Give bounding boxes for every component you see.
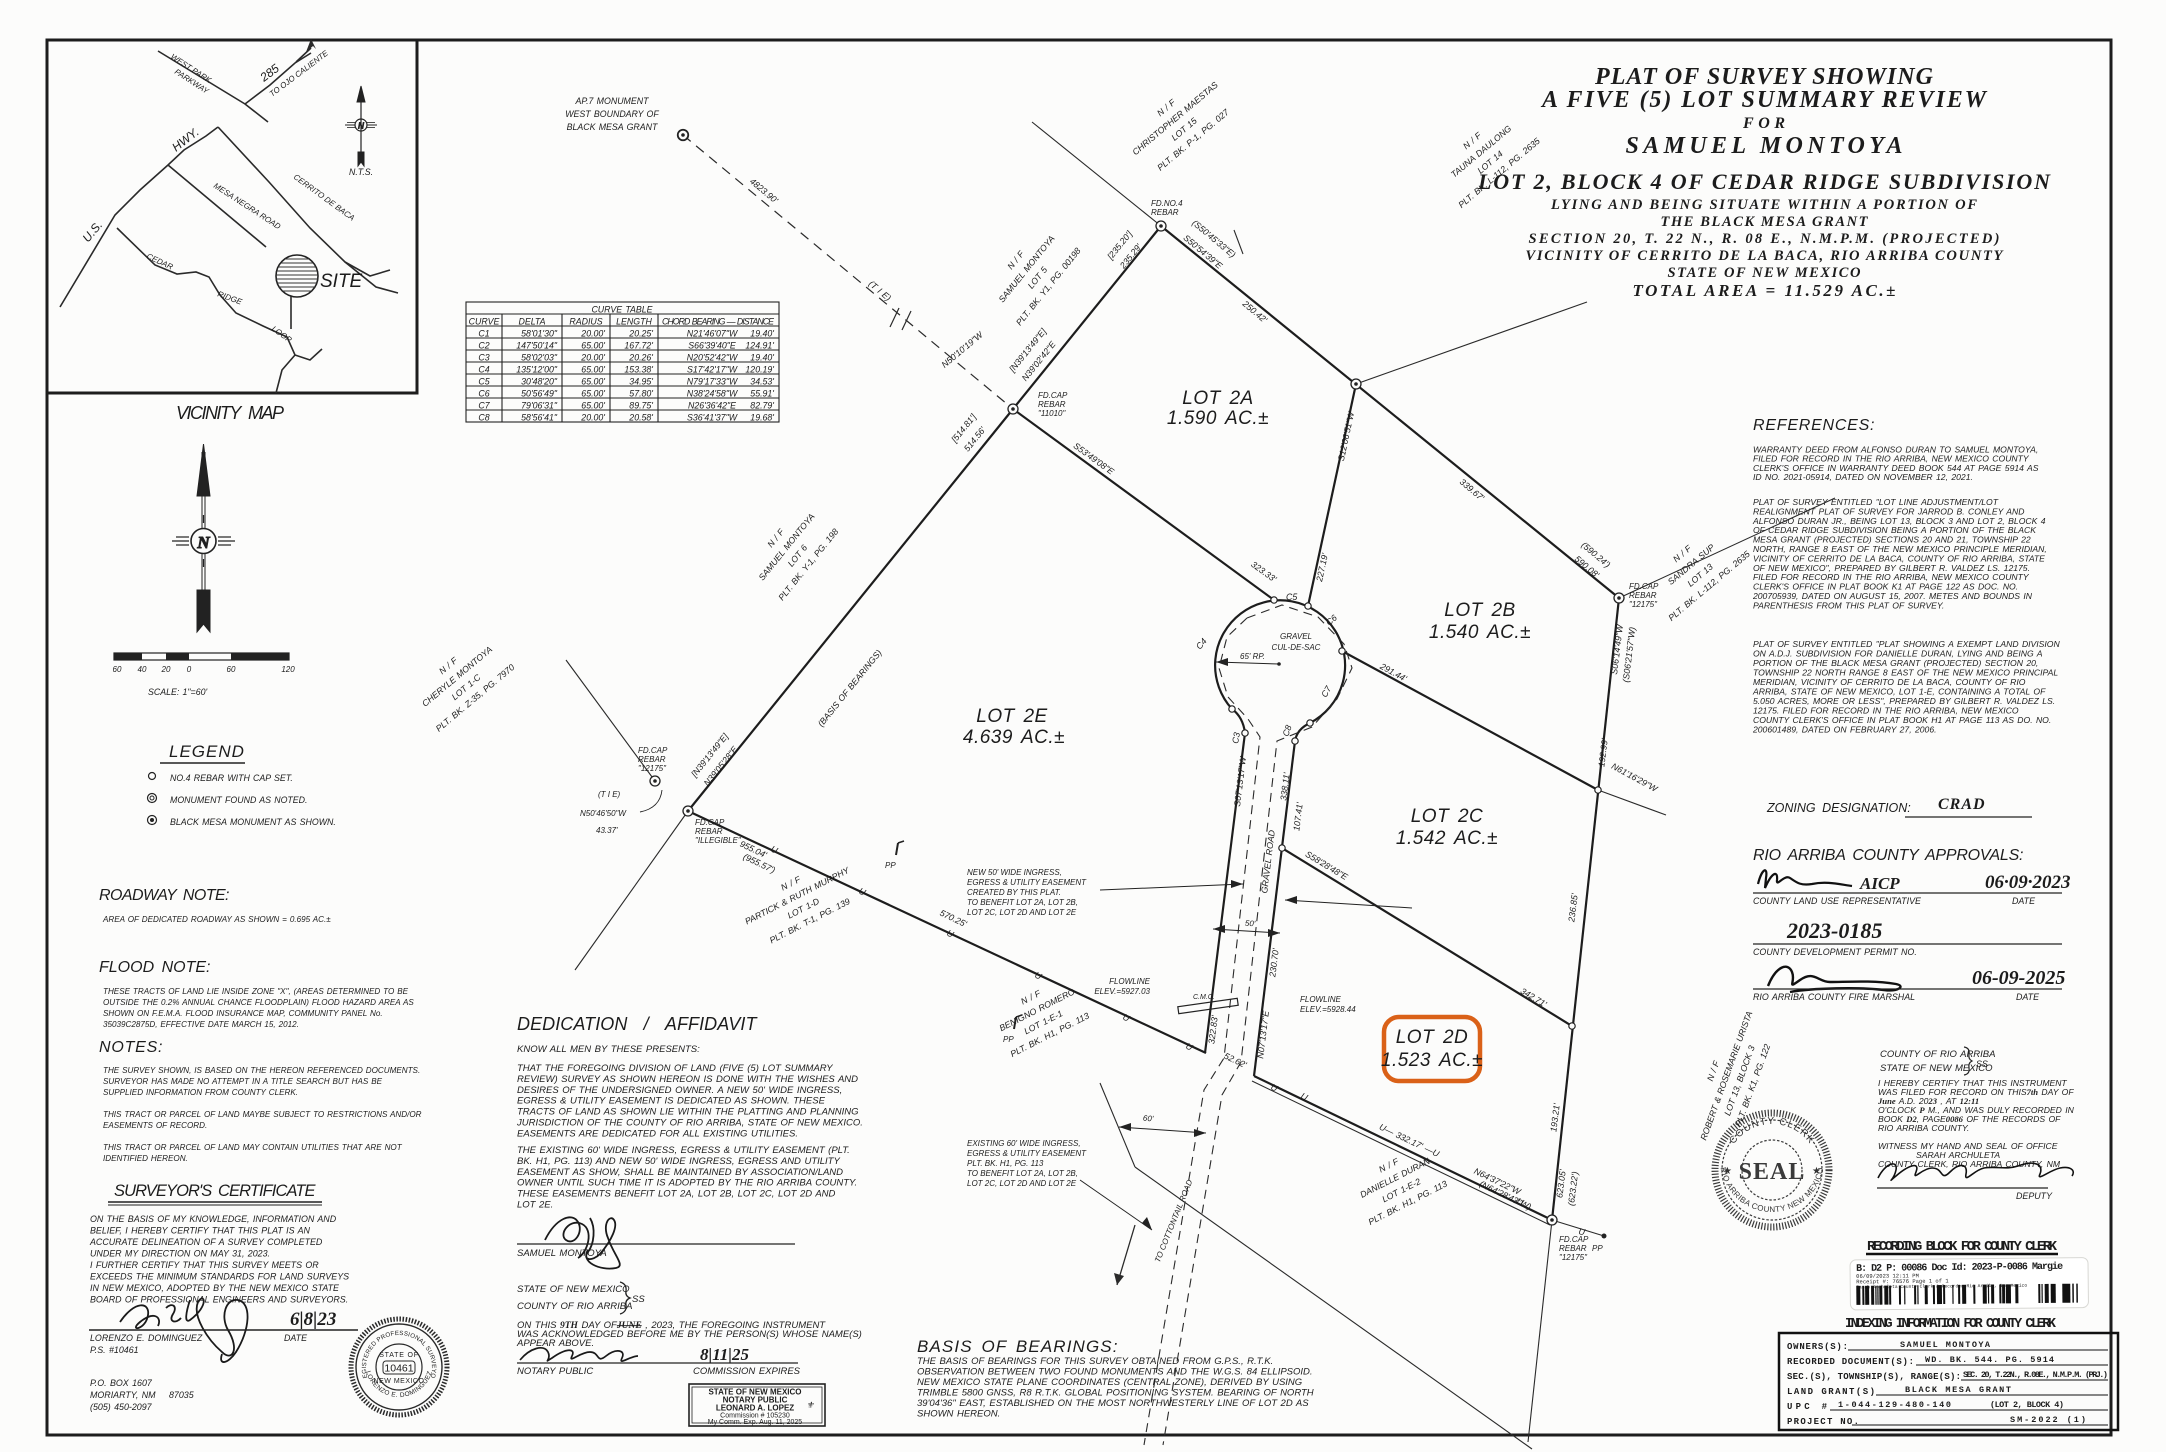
svg-text:FLOWLINE: FLOWLINE [1109,977,1151,986]
svg-text:30'48'20": 30'48'20" [521,377,558,387]
svg-text:58'56'41": 58'56'41" [521,413,558,423]
svg-text:236.85': 236.85' [1566,893,1580,924]
svg-text:N50'46'50"W: N50'46'50"W [580,809,627,818]
svg-text:0: 0 [187,665,192,674]
svg-text:REVIEW) SURVEY AS SHOWN HEREON: REVIEW) SURVEY AS SHOWN HEREON IS DONE W… [517,1074,858,1085]
svg-text:C3: C3 [1230,731,1242,744]
svg-text:SAMUEL MONTOYA: SAMUEL MONTOYA [517,1248,607,1259]
svg-text:N50'10'19"W: N50'10'19"W [940,329,986,370]
svg-text:ON A.D.J. SUBDIVISION FOR DANI: ON A.D.J. SUBDIVISION FOR DANIELLE DURAN… [1753,649,2043,659]
svg-text:20.26': 20.26' [628,353,653,363]
svg-text:153.38': 153.38' [624,365,653,375]
svg-text:20: 20 [161,665,171,674]
svg-text:PLT. BK. P-1, PG. 027: PLT. BK. P-1, PG. 027 [1155,106,1231,172]
svg-text:N21'46'07"W: N21'46'07"W [687,329,738,339]
svg-text:RIO ARRIBA COUNTY APPROVALS:: RIO ARRIBA COUNTY APPROVALS: [1753,847,2024,864]
svg-text:U.S.: U.S. [80,218,106,245]
svg-text:S36'41'37"W: S36'41'37"W [687,413,738,423]
svg-text:C3: C3 [478,353,489,363]
svg-text:338.11': 338.11' [1278,772,1291,801]
svg-text:STATE OF: STATE OF [379,1352,419,1359]
svg-text:THIS TRACT OR PARCEL OF LAND M: THIS TRACT OR PARCEL OF LAND MAYBE SUBJE… [103,1110,422,1119]
svg-text:THE BASIS OF BEARINGS FOR THIS: THE BASIS OF BEARINGS FOR THIS SURVEY OB… [917,1356,1273,1367]
svg-text:ROADWAY NOTE:: ROADWAY NOTE: [99,887,230,904]
svg-text:INDEXING INFORMATION FOR COUNT: INDEXING INFORMATION FOR COUNTY CLERK [1845,1317,2057,1332]
svg-text:C4: C4 [1194,636,1209,651]
svg-text:227.19': 227.19' [1314,552,1330,583]
svg-text:LOT 2C, LOT 2D AND LOT 2E: LOT 2C, LOT 2D AND LOT 2E [967,1179,1077,1188]
svg-text:120.19': 120.19' [745,365,774,375]
svg-text:5.050 ACRES, MORE OR LESS", PR: 5.050 ACRES, MORE OR LESS", PREPARED BY … [1753,696,2055,706]
svg-text:A FIVE (5) LOT SUMMARY REVIEW: A FIVE (5) LOT SUMMARY REVIEW [1540,87,1988,113]
svg-text:EASEMENTS ARE DEDICATED FOR AL: EASEMENTS ARE DEDICATED FOR ALL EXISTING… [517,1128,798,1139]
svg-text:PARTICK & RUTH MURPHY: PARTICK & RUTH MURPHY [743,865,851,927]
svg-text:FLOWLINE: FLOWLINE [1300,995,1342,1004]
svg-text:65' RP.: 65' RP. [1240,652,1265,661]
svg-text:285: 285 [257,61,282,85]
svg-text:COMMISSION EXPIRES: COMMISSION EXPIRES [693,1366,801,1377]
svg-text:N: N [358,122,364,131]
svg-text:SHOWN HEREON.: SHOWN HEREON. [917,1409,1000,1420]
svg-text:1.523 AC.±: 1.523 AC.± [1381,1050,1483,1071]
svg-text:C1: C1 [478,329,489,339]
svg-text:N38'24'58"W: N38'24'58"W [687,389,738,399]
svg-text:65.00': 65.00' [581,401,605,411]
svg-text:ON THE BASIS OF MY KNOWLEDGE,: ON THE BASIS OF MY KNOWLEDGE, INFORMATIO… [90,1214,337,1224]
svg-text:FLOOD NOTE:: FLOOD NOTE: [99,959,211,976]
svg-text:PP: PP [1003,1035,1014,1044]
svg-text:89.75': 89.75' [629,401,653,411]
svg-text:322.83': 322.83' [1206,1015,1219,1045]
svg-text:S07'13'17"W: S07'13'17"W [1232,756,1248,808]
svg-text:570.25': 570.25' [938,908,968,929]
svg-text:79'06'31": 79'06'31" [521,401,558,411]
svg-text:REBAR: REBAR [1151,208,1179,217]
svg-text:TOTAL AREA = 11.529 AC.±: TOTAL AREA = 11.529 AC.± [1633,281,1896,300]
svg-text:N.T.S.: N.T.S. [349,167,373,177]
svg-text:OBSERVATION BETWEEN TWO FOUND: OBSERVATION BETWEEN TWO FOUND MONUMENTS … [917,1367,1313,1378]
svg-text:LEGEND: LEGEND [169,742,245,761]
svg-text:WD. BK. 544. PG. 5914: WD. BK. 544. PG. 5914 [1925,1355,2054,1365]
svg-text:623.05': 623.05' [1554,1169,1567,1199]
svg-text:N20'52'42"W: N20'52'42"W [687,353,738,363]
svg-text:OUTSIDE THE 0.2% ANNUAL CHANCE: OUTSIDE THE 0.2% ANNUAL CHANCE FLOODPLAI… [103,998,414,1007]
svg-text:20.25': 20.25' [628,329,653,339]
svg-text:LORENZO E. DOMINGUEZ: LORENZO E. DOMINGUEZ [90,1333,203,1343]
svg-text:BLACK MESA GRANT: BLACK MESA GRANT [567,122,658,132]
svg-text:BOARD OF PROFESSIONAL ENGINEER: BOARD OF PROFESSIONAL ENGINEERS AND SURV… [90,1295,348,1305]
svg-text:C5: C5 [1286,592,1297,602]
svg-text:BASIS OF BEARINGS:: BASIS OF BEARINGS: [917,1337,1118,1356]
svg-text:COUNTY DEVELOPMENT PERMIT NO.: COUNTY DEVELOPMENT PERMIT NO. [1753,947,1917,957]
svg-text:RECORDING BLOCK FOR COUNTY CLE: RECORDING BLOCK FOR COUNTY CLERK [1867,1239,2058,1255]
svg-text:SURVEYOR'S CERTIFICATE: SURVEYOR'S CERTIFICATE [114,1182,316,1200]
svg-text:135'12'00": 135'12'00" [516,365,558,375]
svg-text:107.41': 107.41' [1291,802,1304,832]
svg-text:BELIEF, I HEREBY CERTIFY THAT: BELIEF, I HEREBY CERTIFY THAT THIS PLAT … [90,1226,311,1236]
svg-text:NOTARY PUBLIC: NOTARY PUBLIC [517,1366,593,1377]
svg-text:4.639 AC.±: 4.639 AC.± [963,727,1065,748]
svg-text:12175. FILED FOR RECORD IN TH: 12175. FILED FOR RECORD IN THE RIO ARRIB… [1753,706,2019,716]
svg-text:N26'36'42"E: N26'36'42"E [688,401,736,411]
svg-text:GRAVEL: GRAVEL [1280,632,1312,641]
svg-text:REBAR: REBAR [1629,591,1657,600]
svg-text:PORTION OF THE BLACK MESA GRAN: PORTION OF THE BLACK MESA GRANT (PROJECT… [1753,658,2038,668]
svg-text:MESA NEGRA ROAD: MESA NEGRA ROAD [212,181,283,231]
svg-text:BLACK MESA GRANT: BLACK MESA GRANT [1905,1385,2011,1395]
svg-text:TO BENEFIT LOT 2A, LOT 2B,: TO BENEFIT LOT 2A, LOT 2B, [967,1169,1078,1178]
svg-text:60: 60 [227,665,236,674]
svg-text:NO.4 REBAR WITH CAP SET.: NO.4 REBAR WITH CAP SET. [170,773,293,783]
svg-text:BK. H1, PG. 113) AND NEW 50' W: BK. H1, PG. 113) AND NEW 50' WIDE INGRES… [517,1156,840,1167]
svg-text:SURVEYOR HAS MADE NO ATTEMPT I: SURVEYOR HAS MADE NO ATTEMPT IN A TITLE … [103,1077,383,1086]
svg-text:65.00': 65.00' [581,365,605,375]
svg-text:CEDAR: CEDAR [145,252,174,272]
svg-text:BLACK MESA MONUMENT AS SHOWN.: BLACK MESA MONUMENT AS SHOWN. [170,817,336,827]
svg-text:My Comm. Exp. Aug. 11, 2025: My Comm. Exp. Aug. 11, 2025 [708,1419,803,1426]
svg-text:CERRITO DE BACA: CERRITO DE BACA [292,172,357,222]
svg-text:REBAR: REBAR [638,755,666,764]
svg-text:C6: C6 [1324,613,1339,628]
svg-text:65.00': 65.00' [581,341,605,351]
svg-text:SECTION 20, T. 22 N., R. 08 E.: SECTION 20, T. 22 N., R. 08 E., N.M.P.M.… [1529,231,2000,247]
svg-text:OWNER UNTIL SUCH TIME IT IS AD: OWNER UNTIL SUCH TIME IT IS ADOPTED BY T… [517,1178,857,1189]
svg-text:SS: SS [632,1294,645,1305]
svg-text:ARRIBA, STATE OF NEW MEXICO, L: ARRIBA, STATE OF NEW MEXICO, LOT 1-E, CO… [1752,687,2046,697]
svg-text:AREA OF DEDICATED ROADWAY AS S: AREA OF DEDICATED ROADWAY AS SHOWN = 0.6… [102,915,331,924]
svg-text:FD.CAP: FD.CAP [1559,1235,1589,1244]
svg-text:P.O. BOX 1607: P.O. BOX 1607 [90,1378,153,1388]
svg-text:339.67': 339.67' [1458,477,1487,503]
svg-text:8|​11|​25: 8|​11|​25 [700,1345,750,1364]
svg-text:LOT 2E.: LOT 2E. [517,1200,553,1211]
svg-text:RIDGE: RIDGE [216,289,244,306]
svg-text:TRACTS OF LAND AS SHOWN LIE WI: TRACTS OF LAND AS SHOWN LIE WITHIN THE P… [517,1107,859,1118]
svg-text:1.542 AC.±: 1.542 AC.± [1396,828,1498,849]
svg-text:55.91': 55.91' [750,389,774,399]
svg-text:65.00': 65.00' [581,377,605,387]
svg-text:DELTA: DELTA [518,317,545,327]
svg-text:LOT 2C: LOT 2C [1411,806,1484,827]
svg-text:193.21': 193.21' [1548,1103,1561,1133]
svg-text:20.00': 20.00' [580,413,605,423]
svg-text:PARENTHESIS FROM THIS PLAT OF: PARENTHESIS FROM THIS PLAT OF SURVEY. [1753,600,1944,610]
svg-text:SEC.(S), TOWNSHIP(S), RANGE(S): SEC.(S), TOWNSHIP(S), RANGE(S): [1787,1372,1961,1382]
svg-text:P.S. #10461: P.S. #10461 [90,1345,139,1355]
svg-text:UNDER MY DIRECTION ON MAY 31,: UNDER MY DIRECTION ON MAY 31, 2023. [90,1249,270,1259]
svg-text:FOR: FOR [1742,115,1785,132]
svg-text:20.58': 20.58' [628,413,653,423]
svg-text:PLAT OF SURVEY ENTITLED "PLAT: PLAT OF SURVEY ENTITLED "PLAT SHOWING A … [1753,639,2060,649]
svg-text:20.00': 20.00' [580,329,605,339]
svg-text:1.540 AC.±: 1.540 AC.± [1429,622,1531,643]
svg-text:EASEMENTS OF RECORD.: EASEMENTS OF RECORD. [103,1121,207,1130]
svg-text:PLT. BK. H1, PG. 113: PLT. BK. H1, PG. 113 [967,1159,1044,1168]
svg-text:RIO ARRIBA COUNTY FIRE MARSHAL: RIO ARRIBA COUNTY FIRE MARSHAL [1753,992,1915,1002]
svg-text:6|8|23: 6|8|23 [290,1309,336,1330]
svg-text:MONUMENT FOUND AS NOTED.: MONUMENT FOUND AS NOTED. [170,795,307,805]
svg-text:STATE OF NEW MEXICO: STATE OF NEW MEXICO [1668,265,1862,281]
svg-text:IDENTIFIED HEREON.: IDENTIFIED HEREON. [103,1154,188,1163]
svg-text:342.71': 342.71' [1519,986,1549,1009]
svg-text:"12175": "12175" [638,764,667,773]
svg-text:THESE EASEMENTS BENEFIT LOT 2A: THESE EASEMENTS BENEFIT LOT 2A, LOT 2B, … [517,1189,836,1200]
svg-text:06·09·2023: 06·09·2023 [1985,872,2071,893]
svg-text:147'50'14": 147'50'14" [516,341,558,351]
svg-text:S66'39'40"E: S66'39'40"E [688,341,736,351]
svg-text:SEC. 20, T.22N., R.08E., N.M.P: SEC. 20, T.22N., R.08E., N.M.P.M. (PRJ.) [1963,1370,2108,1380]
svg-text:SM-2022 (1): SM-2022 (1) [2010,1415,2086,1425]
svg-text:REBAR: REBAR [1559,1244,1587,1253]
svg-text:SAMUEL MONTOYA: SAMUEL MONTOYA [1900,1340,1991,1350]
svg-text:(BASIS OF BEARINGS): (BASIS OF BEARINGS) [816,648,884,729]
svg-text:10461: 10461 [384,1363,413,1375]
svg-text:SAMUEL MONTOYA: SAMUEL MONTOYA [1626,133,1903,159]
svg-text:60: 60 [113,665,122,674]
svg-text:C7: C7 [478,401,490,411]
svg-text:FD.CAP: FD.CAP [1629,582,1659,591]
svg-text:N79'17'33"W: N79'17'33"W [687,377,738,387]
svg-text:EGRESS & UTILITY EASEMENT: EGRESS & UTILITY EASEMENT [967,878,1087,887]
svg-text:NEW MEXICO: NEW MEXICO [374,1378,425,1385]
svg-text:★: ★ [1723,1166,1732,1177]
svg-text:19.40': 19.40' [750,329,774,339]
svg-text:C6: C6 [478,389,489,399]
svg-text:39'04'36" EAST, ESTABLISHED ON: 39'04'36" EAST, ESTABLISHED ON THE MOST … [917,1398,1309,1409]
svg-text:167.72': 167.72' [624,341,653,351]
svg-text:ZONING DESIGNATION:: ZONING DESIGNATION: [1766,801,1911,815]
svg-text:(505) 450-2097: (505) 450-2097 [90,1402,153,1412]
svg-text:2023-0185: 2023-0185 [1786,918,1882,943]
svg-text:ACCURATE DELINEATION OF A SURV: ACCURATE DELINEATION OF A SURVEY COMPLET… [89,1237,323,1247]
svg-text:06-09-2025: 06-09-2025 [1972,967,2065,989]
svg-text:THAT THE FOREGOING DIVISION OF: THAT THE FOREGOING DIVISION OF LAND (FIV… [517,1063,833,1074]
svg-text:IN NEW MEXICO, ADOPTED BY THE: IN NEW MEXICO, ADOPTED BY THE NEW MEXICO… [90,1283,339,1293]
svg-text:THIS TRACT OR PARCEL OF LAND M: THIS TRACT OR PARCEL OF LAND MAY CONTAIN… [103,1143,403,1152]
svg-text:PP: PP [885,861,896,870]
svg-text:LYING AND BEING SITUATE WITHIN: LYING AND BEING SITUATE WITHIN A PORTION… [1550,197,1977,213]
svg-text:DATE: DATE [284,1333,307,1343]
svg-text:MERIDIAN, VICINITY OF CERRITO: MERIDIAN, VICINITY OF CERRITO DE LA BACA… [1753,677,2026,687]
svg-text:S53'49'08"E: S53'49'08"E [1072,441,1116,477]
svg-text:WEST BOUNDARY OF: WEST BOUNDARY OF [565,109,659,119]
svg-text:PLT. BK. Y1, PG. 00198: PLT. BK. Y1, PG. 00198 [1014,246,1083,328]
svg-text:LOT 2D: LOT 2D [1396,1027,1469,1048]
svg-text:82.79': 82.79' [750,401,774,411]
svg-text:NEW MEXICO STATE PLANE COORDIN: NEW MEXICO STATE PLANE COORDINATES (CENT… [917,1377,1302,1388]
svg-text:ELEV.=5928.44: ELEV.=5928.44 [1300,1005,1356,1014]
svg-text:KNOW ALL MEN BY THESE PRESENTS: KNOW ALL MEN BY THESE PRESENTS: [517,1044,700,1055]
svg-text:LOT 2A: LOT 2A [1182,388,1253,409]
svg-text:50'56'49": 50'56'49" [521,389,558,399]
svg-text:U: U [945,928,956,940]
svg-text:SITE: SITE [320,271,363,292]
svg-text:FD.NO.4: FD.NO.4 [1151,199,1183,208]
svg-text:"ILLEGIBLE": "ILLEGIBLE" [695,836,742,845]
svg-text:TOWNSHIP 22 NORTH RANGE 8 EAST: TOWNSHIP 22 NORTH RANGE 8 EAST OF THE NE… [1753,668,2058,678]
svg-text:LOOP: LOOP [270,324,294,345]
svg-text:43.37': 43.37' [596,826,618,835]
svg-text:58'01'30": 58'01'30" [521,329,558,339]
svg-text:THESE TRACTS OF LAND LIE INSID: THESE TRACTS OF LAND LIE INSIDE ZONE "X"… [103,987,409,996]
svg-text:UPC #: UPC # [1787,1402,1828,1412]
svg-text:SS: SS [1976,1059,1988,1069]
svg-text:THE EXISTING 60' WIDE INGRESS,: THE EXISTING 60' WIDE INGRESS, EGRESS & … [517,1145,850,1156]
svg-text:CURVE: CURVE [469,317,500,327]
svg-text:ID NO. 2021-05914, DATED ON NO: ID NO. 2021-05914, DATED ON NOVEMBER 12,… [1753,472,1973,482]
svg-text:DEDICATION / AFFIDAVIT: DEDICATION / AFFIDAVIT [517,1014,759,1034]
svg-text:1.590 AC.±: 1.590 AC.± [1167,408,1269,429]
svg-text:DEPUTY: DEPUTY [2016,1191,2053,1201]
svg-text:N: N [196,533,210,552]
svg-text:LOT 2E: LOT 2E [976,706,1047,727]
svg-text:SCALE: 1"=60': SCALE: 1"=60' [148,687,207,697]
svg-text:COUNTY CLERK'S OFFICE IN PLAT: COUNTY CLERK'S OFFICE IN PLAT BOOK H1 AT… [1753,715,2051,725]
svg-text:RADIUS: RADIUS [569,317,602,327]
svg-text:C8: C8 [478,413,489,423]
svg-text:STATE OF NEW MEXICO: STATE OF NEW MEXICO [517,1284,630,1295]
svg-text:LEONARD A. LOPEZ: LEONARD A. LOPEZ [716,1404,794,1413]
svg-text:LOT 2, BLOCK 4 OF CEDAR RIDGE: LOT 2, BLOCK 4 OF CEDAR RIDGE SUBDIVISIO… [1477,169,2051,194]
svg-text:65.00': 65.00' [581,389,605,399]
svg-text:"12175": "12175" [1629,600,1658,609]
svg-text:57.80': 57.80' [629,389,653,399]
svg-text:40: 40 [138,665,147,674]
svg-text:PLT. BK. Y-1, PG. 198: PLT. BK. Y-1, PG. 198 [776,527,840,603]
svg-text:SHOWN ON F.E.M.A. FLOOD INSURA: SHOWN ON F.E.M.A. FLOOD INSURANCE MAP, C… [103,1009,383,1018]
svg-text:EXCEEDS THE MINIMUM STANDARDS: EXCEEDS THE MINIMUM STANDARDS FOR LAND S… [90,1272,349,1282]
svg-text:VICINITY OF CERRITO DE LA BACA: VICINITY OF CERRITO DE LA BACA, RIO ARRI… [1526,248,2004,264]
svg-text:20.00': 20.00' [580,353,605,363]
svg-text:CHRISTOPHER MAESTAS: CHRISTOPHER MAESTAS [1130,80,1220,157]
svg-text:THE BLACK MESA GRANT: THE BLACK MESA GRANT [1661,214,1869,230]
svg-text:REFERENCES:: REFERENCES: [1753,417,1875,434]
svg-text:34.95': 34.95' [629,377,653,387]
svg-text:RIO ARRIBA COUNTY.: RIO ARRIBA COUNTY. [1878,1123,1969,1133]
svg-text:C7: C7 [1319,683,1334,699]
svg-text:TO COTTONTAIL ROAD: TO COTTONTAIL ROAD [1153,1178,1195,1263]
svg-text:60': 60' [1143,1114,1154,1124]
svg-text:LAND GRANT(S): LAND GRANT(S) [1787,1387,1875,1397]
svg-text:COUNTY OF RIO ARRIBA: COUNTY OF RIO ARRIBA [517,1301,633,1312]
svg-text:JURISDICTION OF THE COUNTY OF: JURISDICTION OF THE COUNTY OF RIO ARRIBA… [516,1118,863,1129]
svg-text:50': 50' [1245,919,1256,929]
svg-text:N61'16'29"W: N61'16'29"W [1610,761,1660,794]
svg-text:FD.CAP: FD.CAP [638,746,668,755]
svg-text:C4: C4 [478,365,489,375]
svg-text:REBAR: REBAR [1038,400,1066,409]
svg-text:CHORD BEARING — DISTANCE: CHORD BEARING — DISTANCE [662,317,774,327]
svg-text:THE SURVEY SHOWN, IS BASED ON: THE SURVEY SHOWN, IS BASED ON THE HEREON… [103,1066,420,1075]
svg-text:52.62': 52.62' [1222,1051,1248,1070]
svg-text:GRAVEL ROAD: GRAVEL ROAD [1259,829,1277,894]
svg-text:EXISTING 60' WIDE INGRESS,: EXISTING 60' WIDE INGRESS, [967,1139,1081,1148]
svg-text:C2: C2 [478,341,489,351]
svg-text:SUPPLIED INFORMATION FROM COUN: SUPPLIED INFORMATION FROM COUNTY CLERK. [103,1088,298,1097]
svg-text:AICP: AICP [1859,874,1900,893]
svg-text:4823.90': 4823.90' [748,176,780,205]
svg-text:EGRESS & UTILITY EASEMENT: EGRESS & UTILITY EASEMENT [967,1149,1087,1158]
svg-text:FD.CAP: FD.CAP [695,818,725,827]
svg-text:OWNERS(S):: OWNERS(S): [1787,1342,1848,1352]
svg-text:RECORDED DOCUMENT(S):: RECORDED DOCUMENT(S): [1787,1357,1914,1367]
svg-text:★: ★ [1812,1166,1821,1177]
svg-text:323.33': 323.33' [1249,559,1278,584]
svg-text:COUNTY LAND USE REPRESENTATIVE: COUNTY LAND USE REPRESENTATIVE [1753,896,1921,906]
svg-text:1-044-129-480-140: 1-044-129-480-140 [1838,1400,1951,1410]
svg-text:58'02'03": 58'02'03" [521,353,558,363]
svg-text:200601489, DATED ON FEBRUARY 2: 200601489, DATED ON FEBRUARY 27, 2006. [1752,725,1937,735]
svg-text:DESIRES OF THE UNDERSIGNED OWN: DESIRES OF THE UNDERSIGNED OWNER. A NEW … [517,1085,842,1096]
svg-text:34.53': 34.53' [750,377,774,387]
svg-text:FD.CAP: FD.CAP [1038,391,1068,400]
svg-text:19.40': 19.40' [750,353,774,363]
svg-text:124.91': 124.91' [745,341,774,351]
svg-text:"12175": "12175" [1559,1253,1588,1262]
svg-text:PP: PP [1592,1244,1603,1253]
svg-text:EASEMENT AS SHOW, SHALL BE MAI: EASEMENT AS SHOW, SHALL BE MAINTAINED BY… [517,1167,843,1178]
svg-text:C.M.C.: C.M.C. [1193,994,1215,1001]
svg-text:C5: C5 [478,377,489,387]
svg-text:CURVE TABLE: CURVE TABLE [591,305,652,315]
svg-text:S12'06'51"W: S12'06'51"W [1336,410,1356,462]
svg-text:N07'13'17"E: N07'13'17"E [1255,1010,1271,1059]
svg-text:35039C2875D, EFFECTIVE DATE MA: 35039C2875D, EFFECTIVE DATE MARCH 15, 20… [103,1020,299,1029]
svg-text:DATE: DATE [2016,992,2039,1002]
svg-text:"11010": "11010" [1038,409,1066,418]
svg-text:(T I E): (T I E) [598,790,621,799]
svg-text:(LOT 2, BLOCK 4): (LOT 2, BLOCK 4) [1990,1400,2064,1410]
svg-text:120: 120 [281,665,295,674]
svg-text:PROJECT NO.: PROJECT NO. [1787,1417,1859,1427]
svg-text:APPEAR ABOVE.: APPEAR ABOVE. [516,1338,594,1349]
svg-text:⚜: ⚜ [806,1400,815,1410]
svg-text:SEAL: SEAL [1739,1159,1806,1185]
svg-text:LOT 2C, LOT 2D AND LOT 2E: LOT 2C, LOT 2D AND LOT 2E [967,908,1077,917]
svg-text:DATE: DATE [2012,896,2035,906]
svg-text:AP.7 MONUMENT: AP.7 MONUMENT [575,96,650,106]
svg-text:NEW 50' WIDE INGRESS,: NEW 50' WIDE INGRESS, [967,868,1062,877]
svg-text:192.99': 192.99' [1596,738,1609,768]
svg-text:I FURTHER CERTIFY THAT THIS SU: I FURTHER CERTIFY THAT THIS SURVEY MEETS… [90,1260,319,1270]
svg-text:NOTES:: NOTES: [99,1039,163,1056]
svg-text:LOT 2B: LOT 2B [1444,600,1515,621]
svg-text:CREATED BY THIS PLAT.: CREATED BY THIS PLAT. [967,888,1061,897]
svg-text:VICINITY MAP: VICINITY MAP [176,403,284,423]
svg-text:CRAD: CRAD [1938,796,1986,813]
svg-text:CUL-DE-SAC: CUL-DE-SAC [1272,643,1321,652]
svg-text:EGRESS & UTILITY EASEMENT IS D: EGRESS & UTILITY EASEMENT IS DEDICATED A… [517,1096,826,1107]
svg-text:TO BENEFIT LOT 2A, LOT 2B,: TO BENEFIT LOT 2A, LOT 2B, [967,898,1078,907]
svg-text:19.68': 19.68' [750,413,774,423]
svg-text:U: U [857,886,868,898]
svg-text:LENGTH: LENGTH [616,317,652,327]
svg-text:TRIMBLE 5800 GNSS, R8 R.T.K. G: TRIMBLE 5800 GNSS, R8 R.T.K. GLOBAL POSI… [917,1388,1314,1399]
svg-text:MORIARTY, NM 87035: MORIARTY, NM 87035 [90,1390,194,1400]
svg-text:S17'42'17"W: S17'42'17"W [687,365,738,375]
svg-text:ELEV.=5927.03: ELEV.=5927.03 [1094,987,1150,996]
svg-text:REBAR: REBAR [695,827,723,836]
svg-text:(623.22'): (623.22') [1566,1171,1580,1206]
